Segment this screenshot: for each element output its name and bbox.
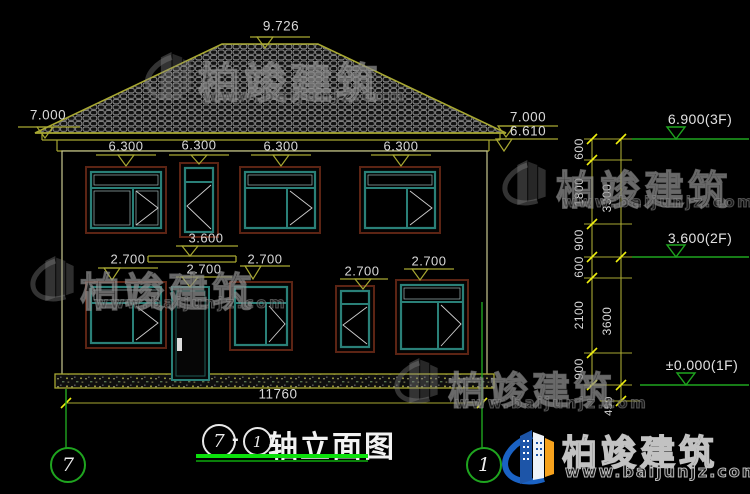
window-2f-2	[180, 163, 218, 237]
dim-eave-right: 7.000	[510, 110, 546, 125]
window-2f-3	[240, 167, 320, 233]
window-1f-3	[336, 286, 374, 352]
window-2f-1	[86, 167, 166, 233]
cad-elevation-canvas: 9.726 7.000 7.000 6.610 6.300 6.300 6.30…	[0, 0, 750, 494]
level-2f: 3.600(2F)	[668, 230, 732, 246]
brand-logo-icon	[505, 430, 554, 484]
dim-2f-window-4: 6.300	[383, 139, 418, 154]
dim-fascia-right: 6.610	[510, 124, 546, 139]
dim-chain-3600: 3600	[600, 307, 614, 336]
watermark-url-left: www.baijunjz.com	[94, 294, 287, 312]
window-1f-4	[396, 280, 468, 354]
dim-total-width: 11760	[258, 387, 297, 402]
dim-eave-left: 7.000	[30, 108, 66, 123]
dim-2f-window-1: 6.300	[108, 139, 143, 154]
level-1f: ±0.000(1F)	[666, 357, 738, 373]
dim-canopy: 3.600	[188, 231, 223, 246]
level-3f: 6.900(3F)	[668, 111, 732, 127]
dim-2f-window-2: 6.300	[181, 138, 216, 153]
dim-2f-window-3: 6.300	[263, 139, 298, 154]
dim-chain-900a: 900	[572, 229, 586, 251]
dim-ridge: 9.726	[263, 19, 299, 34]
brand-logo-url: www.baijunjz.com	[565, 462, 750, 481]
door-handle	[177, 338, 182, 351]
watermark-url-top: www.baijunjz.com	[203, 86, 406, 105]
dim-1f-window-3: 2.700	[344, 264, 379, 279]
watermark-url-low: www.baijunjz.com	[455, 394, 648, 412]
axis-bubble-7: 7	[50, 447, 86, 483]
dim-chain-600a: 600	[572, 138, 586, 160]
window-2f-4	[360, 167, 440, 233]
dim-chain-2100: 2100	[572, 301, 586, 330]
title-underline-2	[196, 460, 368, 462]
axis-bubble-1: 1	[466, 447, 502, 483]
dim-1f-window-4: 2.700	[411, 254, 446, 269]
watermark-url-right: www.baijunjz.com	[562, 193, 750, 211]
title-bubble-7: 7	[202, 424, 236, 458]
title-underline	[196, 454, 368, 458]
dim-chain-600b: 600	[572, 256, 586, 278]
title-dash: -	[232, 428, 239, 451]
